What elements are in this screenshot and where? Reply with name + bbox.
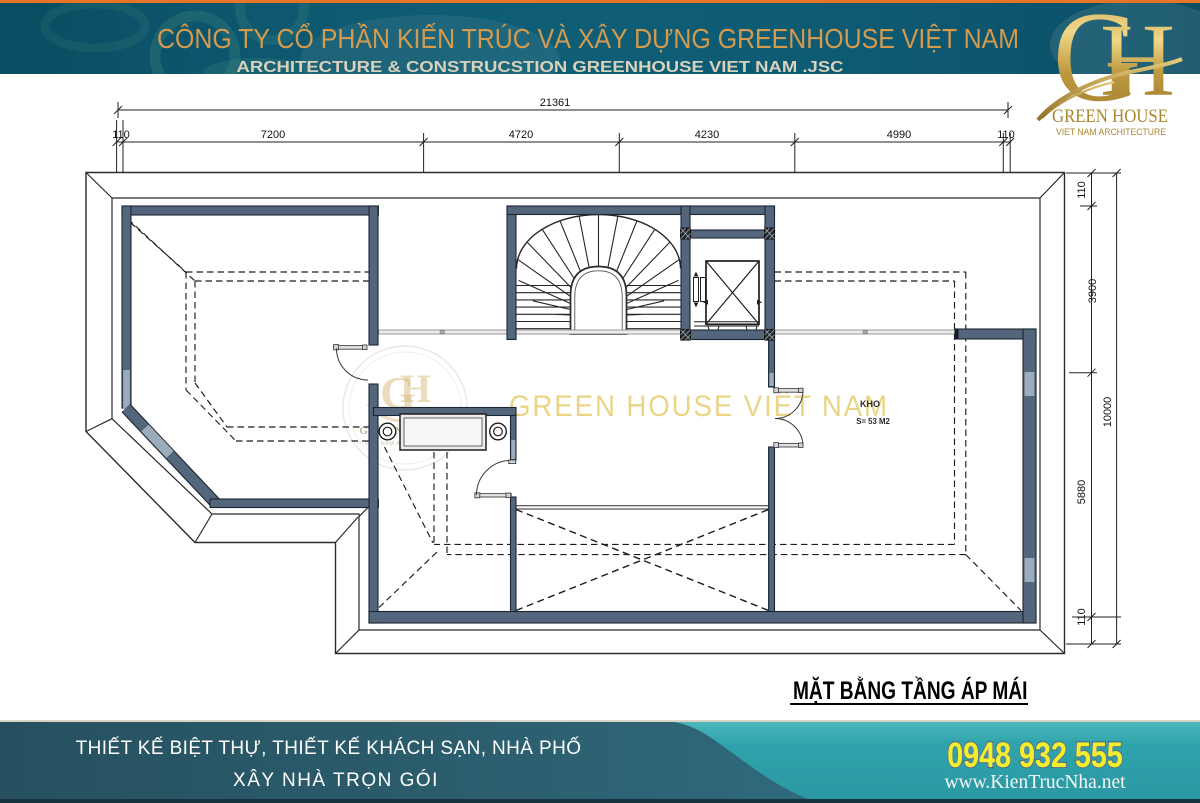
svg-text:110: 110	[1076, 608, 1088, 626]
svg-text:21361: 21361	[540, 97, 571, 109]
svg-text:4720: 4720	[509, 129, 533, 141]
svg-text:KHO: KHO	[860, 399, 880, 409]
svg-text:110: 110	[997, 129, 1015, 141]
svg-text:4230: 4230	[695, 129, 719, 141]
svg-text:7200: 7200	[261, 129, 285, 141]
svg-text:5880: 5880	[1076, 480, 1088, 504]
svg-text:GREEN HOUSE VIỆT NAM: GREEN HOUSE VIỆT NAM	[509, 390, 889, 423]
svg-text:10000: 10000	[1102, 397, 1114, 428]
svg-text:S= 53 M2: S= 53 M2	[856, 417, 890, 426]
svg-text:110: 110	[1076, 181, 1088, 199]
svg-text:110: 110	[112, 129, 130, 141]
svg-text:4990: 4990	[887, 129, 911, 141]
svg-text:H: H	[400, 366, 431, 411]
svg-text:3900: 3900	[1087, 279, 1099, 303]
